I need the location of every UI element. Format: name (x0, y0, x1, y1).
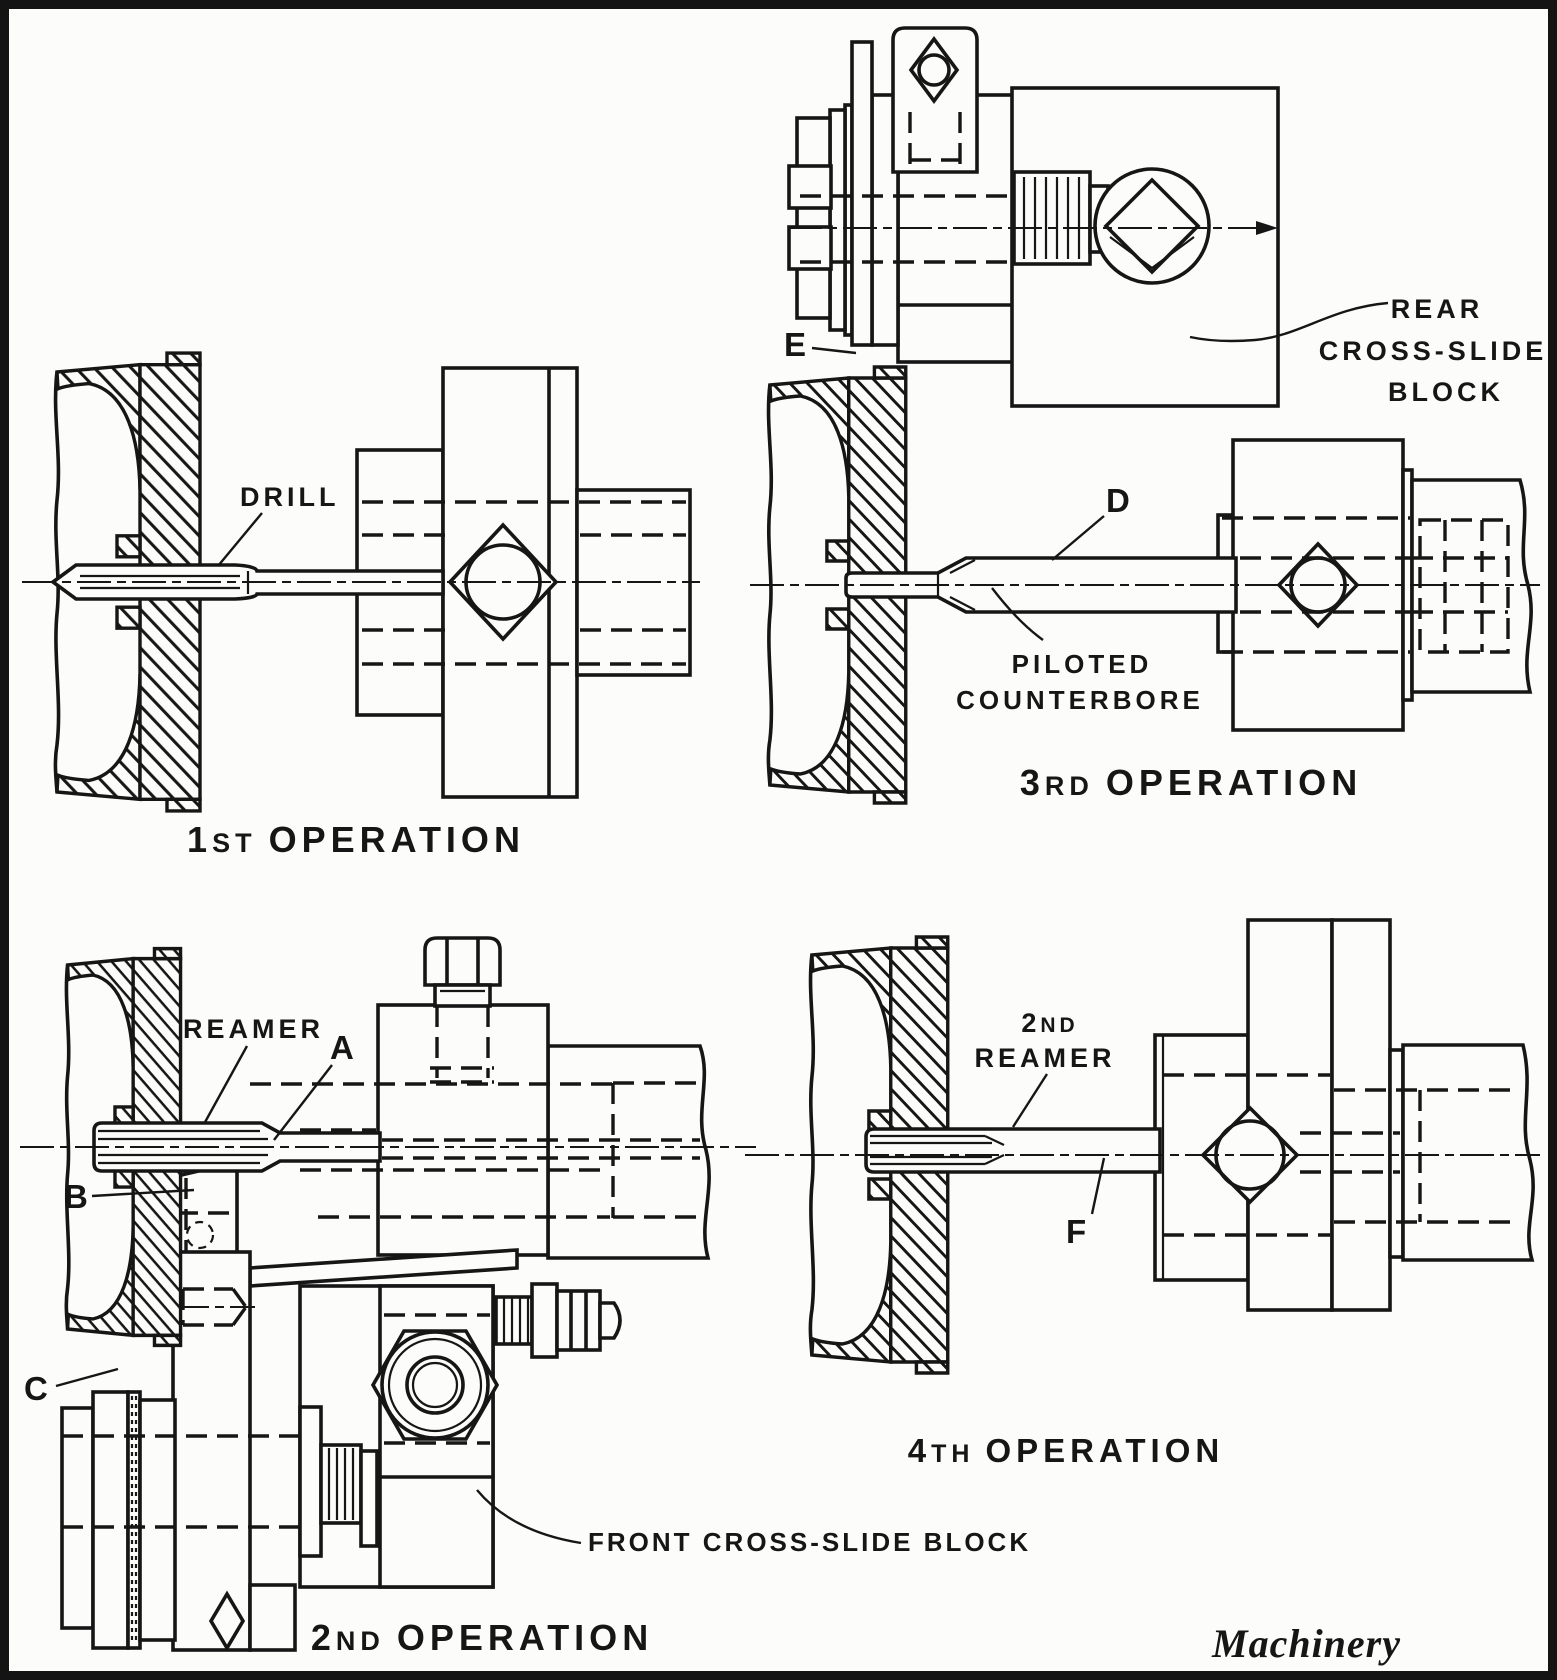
op1-drill-leader (218, 513, 262, 566)
label-a: A (330, 1029, 355, 1066)
op2-c-leader (56, 1369, 118, 1386)
operations-diagram: DRILL 1STOPERATION (9, 9, 1548, 1671)
caption-op4: 4THOPERATION (908, 1432, 1224, 1469)
panel-op2: REAMER A B C FRONT CROSS-SLIDE BLOCK 2ND… (20, 938, 1031, 1658)
label-piloted-2: COUNTERBORE (956, 685, 1204, 715)
panel-op1: DRILL 1STOPERATION (22, 353, 700, 860)
op3-rear-cross-slide-assembly (788, 28, 1278, 406)
op4-spindle (1403, 1045, 1533, 1260)
op2-slide-base (173, 1252, 295, 1650)
op3-e-leader (812, 348, 856, 353)
op2-reamer-holder (378, 938, 709, 1258)
op4-reamer-leader (1013, 1074, 1047, 1127)
label-reamer: REAMER (183, 1014, 324, 1044)
label-2nd-reamer-line2: REAMER (974, 1043, 1115, 1073)
panel-op4: 2ND REAMER F 4THOPERATION (745, 920, 1540, 1469)
caption-op1: 1STOPERATION (187, 819, 525, 860)
credit-machinery: Machinery (1211, 1621, 1401, 1666)
label-rear-1: REAR (1391, 294, 1484, 324)
label-e: E (784, 326, 807, 363)
label-rear-3: BLOCK (1388, 377, 1504, 407)
op4-tool-holder (1155, 920, 1533, 1310)
panel-op3: E D PILOTED COUNTERBORE REAR CROSS-SLIDE… (750, 28, 1547, 803)
label-front-block: FRONT CROSS-SLIDE BLOCK (588, 1527, 1031, 1557)
caption-op3: 3RDOPERATION (1020, 762, 1362, 803)
label-b: B (64, 1178, 89, 1215)
label-f: F (1066, 1213, 1087, 1250)
op2-guide-bushing-block (177, 1162, 237, 1258)
op3-d-leader (1052, 516, 1104, 560)
figure-page: DRILL 1STOPERATION (0, 0, 1557, 1680)
label-2nd-reamer-line1: 2ND (1021, 1008, 1078, 1038)
label-d: D (1106, 482, 1131, 519)
label-piloted-1: PILOTED (1012, 649, 1153, 679)
op2-reamer-leader (204, 1046, 247, 1124)
label-drill: DRILL (240, 482, 339, 512)
caption-op2: 2NDOPERATION (311, 1617, 653, 1658)
label-c: C (24, 1370, 49, 1407)
label-rear-2: CROSS-SLIDE (1319, 336, 1548, 366)
op2-bar (548, 1046, 709, 1258)
op2-adjusting-stud (496, 1284, 620, 1357)
op3-spindle (1412, 480, 1531, 692)
op4-reamer-tool (866, 1129, 1160, 1172)
